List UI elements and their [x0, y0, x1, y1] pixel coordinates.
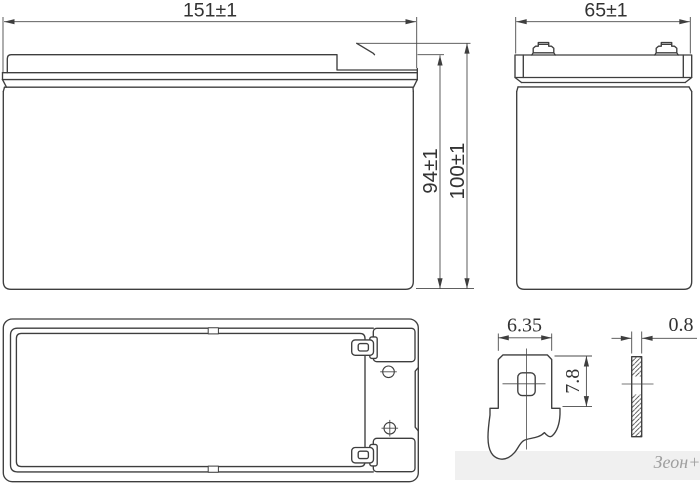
terminal-side-detail: 0.8 [612, 314, 698, 437]
dim-151-label: 151±1 [183, 0, 237, 22]
terminal-pocket-top [373, 328, 415, 361]
drawing-page: 151±1 94±1 [0, 0, 700, 483]
side-view: 65±1 [515, 0, 692, 289]
front-view: 151±1 94±1 [3, 0, 475, 289]
dim-0-8: 0.8 [612, 314, 698, 354]
terminal-right [655, 43, 678, 56]
plus-circle-icon [382, 420, 399, 437]
terminal-pocket-bottom [373, 438, 415, 471]
dim-151: 151±1 [3, 0, 417, 72]
faston-tab-bottom [352, 444, 377, 466]
terminal-left [532, 43, 555, 56]
top-view [3, 319, 418, 482]
notch-top [208, 328, 218, 334]
dim-100-label: 100±1 [446, 143, 469, 200]
dim-94-label: 94±1 [419, 148, 442, 193]
technical-drawing: 151±1 94±1 [0, 0, 700, 483]
dim-7-8: 7.8 [555, 356, 593, 407]
minus-circle-icon [380, 366, 397, 378]
notch-bottom [208, 466, 218, 472]
dim-0-8-label: 0.8 [669, 314, 694, 336]
dim-6-35: 6.35 [498, 315, 551, 351]
dim-7-8-label: 7.8 [562, 369, 584, 394]
dim-65-label: 65±1 [584, 0, 627, 22]
dim-100: 100±1 [446, 43, 470, 288]
terminal-front-detail: 6.35 7.8 [488, 315, 592, 460]
dim-65: 65±1 [516, 0, 691, 54]
dim-6-35-label: 6.35 [507, 315, 542, 337]
watermark: Зеон+ [654, 452, 700, 472]
faston-tab-top [352, 337, 377, 359]
dim-94: 94±1 [419, 55, 443, 288]
